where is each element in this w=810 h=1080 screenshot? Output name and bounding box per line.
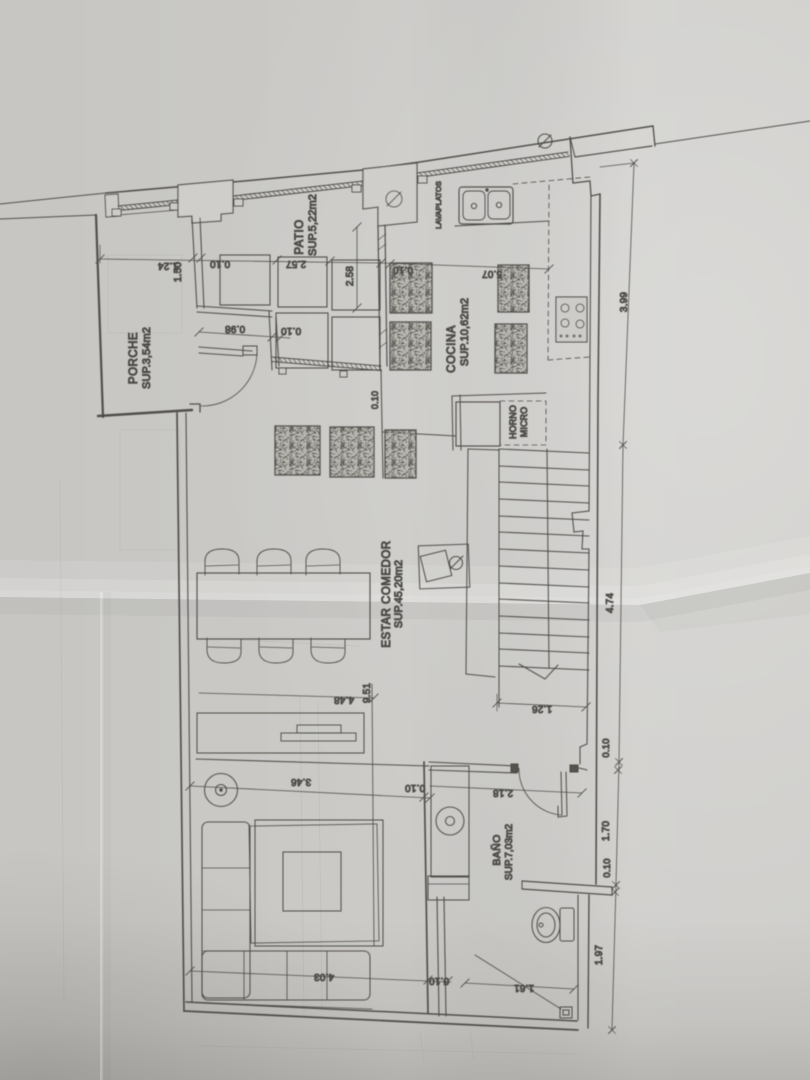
svg-text:0.10: 0.10: [393, 264, 414, 275]
svg-text:1.50: 1.50: [173, 262, 184, 283]
svg-text:9.51: 9.51: [362, 683, 373, 704]
svg-text:2.57: 2.57: [286, 258, 307, 269]
svg-text:4.48: 4.48: [334, 694, 355, 705]
svg-text:0.10: 0.10: [601, 738, 612, 757]
svg-text:HORNO: HORNO: [508, 405, 518, 439]
svg-text:2.18: 2.18: [493, 787, 514, 798]
svg-text:2.58: 2.58: [345, 266, 356, 287]
svg-text:SUP.5,22m2: SUP.5,22m2: [307, 194, 319, 256]
svg-text:MICRO: MICRO: [519, 407, 529, 438]
svg-text:0.10: 0.10: [370, 391, 380, 409]
svg-text:0.10: 0.10: [210, 258, 231, 269]
svg-text:ESTAR COMEDOR: ESTAR COMEDOR: [381, 540, 393, 647]
svg-text:0.98: 0.98: [225, 323, 246, 334]
svg-text:3.99: 3.99: [619, 292, 630, 313]
svg-text:1.61: 1.61: [514, 982, 535, 993]
svg-text:0.10: 0.10: [429, 975, 450, 986]
svg-text:5.07: 5.07: [482, 268, 503, 279]
svg-text:SUP.7,03m2: SUP.7,03m2: [504, 823, 515, 880]
svg-text:4.03: 4.03: [314, 971, 335, 982]
svg-text:PORCHE: PORCHE: [128, 332, 140, 384]
svg-text:1.70: 1.70: [601, 821, 612, 842]
svg-text:LAVAPLATOS: LAVAPLATOS: [434, 181, 443, 229]
svg-text:BAÑO: BAÑO: [490, 834, 503, 865]
svg-text:SUP.45,20m2: SUP.45,20m2: [393, 560, 405, 628]
svg-text:0.10: 0.10: [281, 325, 302, 336]
svg-text:SUP.3,54m2: SUP.3,54m2: [141, 327, 153, 389]
svg-text:3.46: 3.46: [291, 776, 312, 787]
svg-text:0.10: 0.10: [602, 858, 613, 877]
svg-text:SUP.10,62m2: SUP.10,62m2: [459, 298, 471, 366]
svg-text:COCINA: COCINA: [446, 325, 458, 373]
svg-text:1.26: 1.26: [532, 703, 553, 714]
svg-text:PATIO: PATIO: [294, 219, 306, 254]
svg-text:0.10: 0.10: [405, 782, 426, 793]
svg-text:4.74: 4.74: [605, 593, 616, 614]
svg-text:1.97: 1.97: [594, 945, 605, 966]
